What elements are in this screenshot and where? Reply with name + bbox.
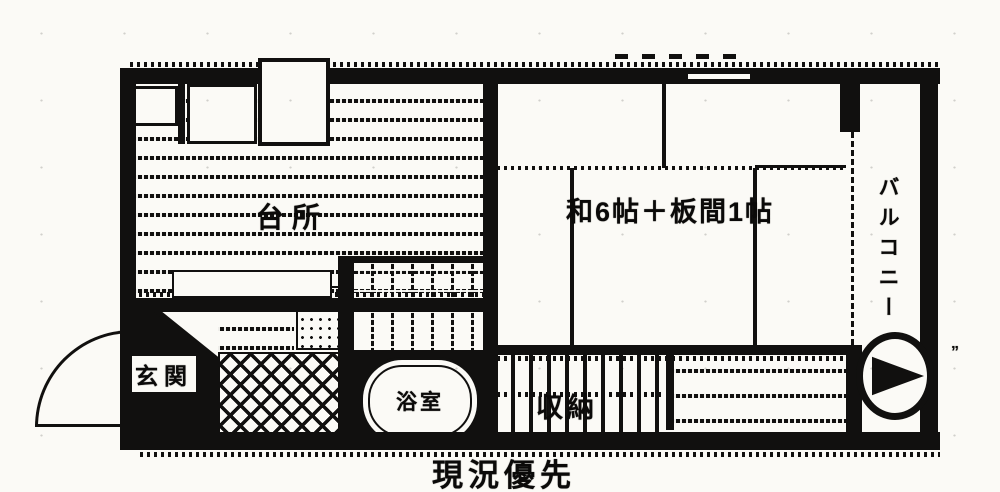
- disclaimer-text: 現況優先: [432, 450, 576, 492]
- top-left-stub-wall: [178, 84, 185, 144]
- scan-noise-dashes: [615, 54, 747, 59]
- kitchen-counter: [172, 270, 332, 298]
- balcony-sliding-opening: [851, 132, 854, 345]
- main-room-label: 和6帖＋板間1帖: [566, 190, 774, 229]
- washroom-top-wall: [338, 256, 498, 263]
- bay-window: [258, 58, 330, 146]
- outer-wall-bottom: [120, 432, 940, 450]
- tatami-line-v1: [662, 84, 666, 168]
- bath-column-left-wall: [338, 256, 354, 450]
- mid-left-wall: [120, 298, 498, 312]
- outer-wall-top: [120, 68, 940, 84]
- cabinet-box-small: [133, 86, 178, 126]
- kitchen-label: 台所: [256, 196, 328, 236]
- storage-label: 収納: [536, 386, 598, 425]
- stipple-tatami-bottom: [497, 356, 847, 361]
- balcony-label: バルコニー: [872, 176, 902, 326]
- balcony-stub-wall-top: [840, 84, 860, 132]
- ditto-mark: ”: [951, 344, 959, 362]
- stipple-top-outer: [130, 62, 940, 67]
- entrance-door-base-line: [35, 424, 133, 427]
- top-wall-window-slit: [688, 74, 750, 79]
- cabinet-box-large: [187, 84, 257, 144]
- bath-label: 浴室: [396, 386, 444, 416]
- tatami-line-h-solid: [755, 165, 846, 168]
- entrance-door-swing-arc: [35, 330, 132, 427]
- entrance-label: 玄関: [132, 356, 196, 392]
- stairs-corridor-divider: [666, 350, 674, 430]
- hall-wood-floor-patch: [218, 312, 294, 350]
- floor-plan-scan: 浴室 和6帖＋板間1帖 台所 収納 玄関 バルコニー 現況優先 ”: [0, 0, 1000, 492]
